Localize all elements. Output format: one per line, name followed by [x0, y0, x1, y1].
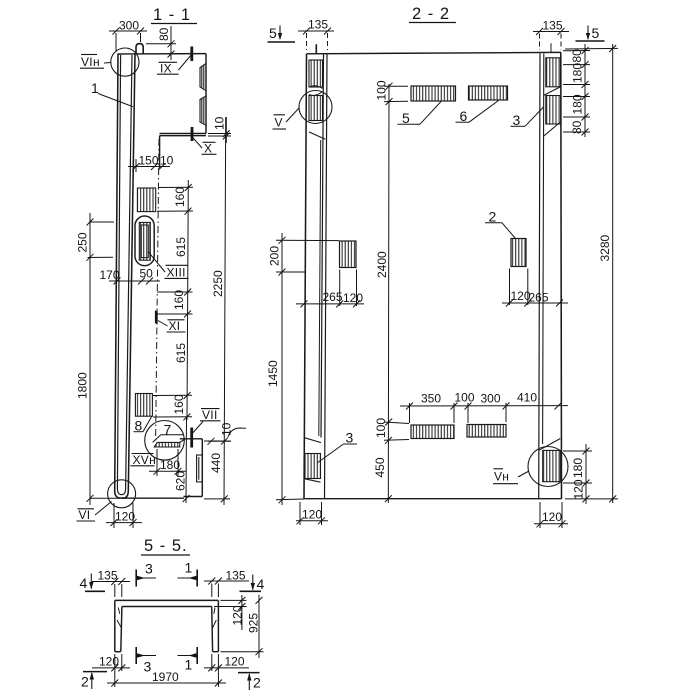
svg-text:2400: 2400 — [375, 251, 389, 278]
svg-text:VII: VII — [202, 408, 218, 422]
svg-text:135: 135 — [98, 569, 118, 583]
svg-text:1: 1 — [185, 560, 193, 576]
svg-text:VI: VI — [79, 508, 91, 522]
svg-text:5: 5 — [592, 25, 600, 41]
svg-text:XIII: XIII — [167, 266, 186, 280]
svg-text:120: 120 — [542, 510, 562, 524]
svg-text:300: 300 — [481, 392, 501, 406]
svg-text:265: 265 — [529, 291, 549, 305]
svg-text:120: 120 — [302, 508, 322, 522]
svg-text:100: 100 — [455, 391, 475, 405]
svg-text:120: 120 — [572, 479, 586, 499]
svg-text:1800: 1800 — [76, 372, 90, 399]
svg-text:200: 200 — [268, 246, 282, 266]
svg-text:6: 6 — [460, 108, 468, 124]
svg-text:10: 10 — [213, 116, 227, 130]
svg-text:160: 160 — [173, 187, 187, 207]
svg-text:350: 350 — [421, 392, 441, 406]
svg-text:615: 615 — [174, 343, 188, 363]
svg-text:615: 615 — [174, 237, 188, 257]
svg-text:440: 440 — [209, 453, 223, 473]
svg-text:170: 170 — [100, 268, 120, 282]
svg-text:XVн: XVн — [133, 453, 157, 467]
svg-text:Vн: Vн — [494, 470, 509, 484]
svg-text:3: 3 — [513, 112, 521, 128]
svg-text:450: 450 — [373, 457, 387, 477]
svg-text:250: 250 — [76, 232, 90, 252]
svg-text:VIн: VIн — [81, 55, 100, 69]
svg-text:3: 3 — [145, 561, 153, 577]
svg-text:135: 135 — [308, 18, 328, 32]
svg-text:4: 4 — [80, 575, 88, 591]
svg-text:120: 120 — [343, 291, 363, 305]
svg-text:120: 120 — [225, 655, 245, 669]
svg-text:IX: IX — [160, 62, 172, 76]
svg-text:2 - 2: 2 - 2 — [412, 5, 450, 23]
svg-text:XI: XI — [169, 319, 181, 333]
svg-text:10: 10 — [160, 154, 174, 168]
svg-text:50: 50 — [140, 267, 154, 281]
svg-text:120: 120 — [115, 510, 135, 524]
svg-text:1450: 1450 — [266, 360, 280, 387]
svg-text:180: 180 — [571, 63, 585, 83]
svg-text:265: 265 — [323, 290, 343, 304]
svg-text:2: 2 — [81, 674, 89, 690]
svg-text:1: 1 — [91, 80, 99, 96]
svg-text:180: 180 — [571, 94, 585, 114]
svg-text:10: 10 — [220, 422, 234, 436]
svg-text:160: 160 — [172, 290, 186, 310]
svg-text:120: 120 — [231, 605, 245, 625]
svg-text:2: 2 — [489, 209, 497, 225]
svg-text:5: 5 — [402, 110, 410, 126]
svg-text:X: X — [204, 142, 212, 156]
svg-text:V: V — [275, 116, 283, 130]
svg-text:1970: 1970 — [152, 670, 179, 684]
svg-text:3280: 3280 — [598, 234, 612, 261]
svg-text:180: 180 — [571, 458, 585, 478]
svg-text:410: 410 — [517, 391, 537, 405]
svg-text:120: 120 — [99, 655, 119, 669]
svg-text:1 - 1: 1 - 1 — [153, 6, 191, 24]
svg-text:135: 135 — [543, 19, 563, 33]
svg-text:100: 100 — [375, 80, 389, 100]
svg-text:3: 3 — [144, 659, 152, 675]
svg-text:80: 80 — [570, 49, 584, 63]
svg-text:5 - 5.: 5 - 5. — [144, 537, 188, 555]
svg-text:925: 925 — [247, 613, 261, 633]
svg-text:8: 8 — [135, 418, 143, 434]
svg-text:1: 1 — [185, 657, 193, 673]
svg-text:180: 180 — [160, 458, 180, 472]
svg-text:4: 4 — [257, 576, 265, 592]
svg-text:160: 160 — [172, 394, 186, 414]
svg-text:2: 2 — [253, 675, 261, 691]
svg-text:2250: 2250 — [211, 270, 225, 297]
svg-text:300: 300 — [119, 19, 139, 33]
svg-text:80: 80 — [157, 27, 171, 41]
svg-text:135: 135 — [226, 569, 246, 583]
svg-text:80: 80 — [570, 120, 584, 134]
svg-text:100: 100 — [374, 418, 388, 438]
svg-text:3: 3 — [346, 430, 354, 446]
svg-text:150: 150 — [139, 154, 159, 168]
svg-text:5: 5 — [269, 25, 277, 41]
